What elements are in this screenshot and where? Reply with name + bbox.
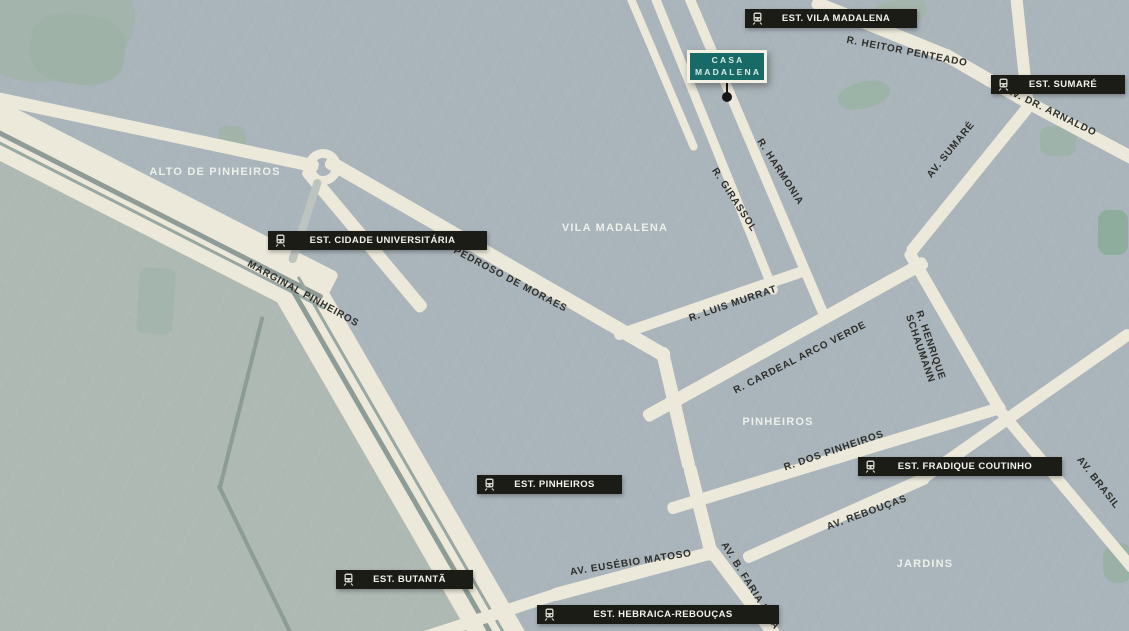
station-label: EST. SUMARÉ — [1009, 79, 1125, 90]
train-icon — [544, 608, 555, 621]
station-marker-est-fradique-coutinho[interactable]: EST. FRADIQUE COUTINHO — [858, 457, 1062, 476]
station-marker-est-hebraica-rebou-as[interactable]: EST. HEBRAICA-REBOUÇAS — [537, 605, 779, 624]
train-icon — [752, 12, 763, 25]
brand-line1: CASA — [709, 55, 744, 66]
station-label: EST. CIDADE UNIVERSITÁRIA — [286, 235, 487, 246]
location-map[interactable]: R. HEITOR PENTEADOAV. DR. ARNALDOAV. SUM… — [0, 0, 1129, 631]
station-label: EST. FRADIQUE COUTINHO — [876, 461, 1062, 472]
brand-line2: MADALENA — [693, 67, 761, 78]
station-marker-est-butant[interactable]: EST. BUTANTÃ — [336, 570, 473, 589]
station-markers-layer: EST. VILA MADALENAEST. SUMARÉEST. CIDADE… — [0, 0, 1129, 631]
station-label: EST. VILA MADALENA — [763, 13, 917, 24]
brand-marker-casa-madalena[interactable]: CASA MADALENA — [687, 50, 767, 83]
station-marker-est-pinheiros[interactable]: EST. PINHEIROS — [477, 475, 622, 494]
train-icon — [998, 78, 1009, 91]
train-icon — [484, 478, 495, 491]
train-icon — [275, 234, 286, 247]
station-label: EST. PINHEIROS — [495, 479, 622, 490]
station-marker-est-cidade-universit-ria[interactable]: EST. CIDADE UNIVERSITÁRIA — [268, 231, 487, 250]
station-marker-est-vila-madalena[interactable]: EST. VILA MADALENA — [745, 9, 917, 28]
train-icon — [343, 573, 354, 586]
station-label: EST. BUTANTÃ — [354, 574, 473, 585]
station-marker-est-sumar[interactable]: EST. SUMARÉ — [991, 75, 1125, 94]
train-icon — [865, 460, 876, 473]
brand-pin-dot — [722, 92, 732, 102]
station-label: EST. HEBRAICA-REBOUÇAS — [555, 609, 779, 620]
